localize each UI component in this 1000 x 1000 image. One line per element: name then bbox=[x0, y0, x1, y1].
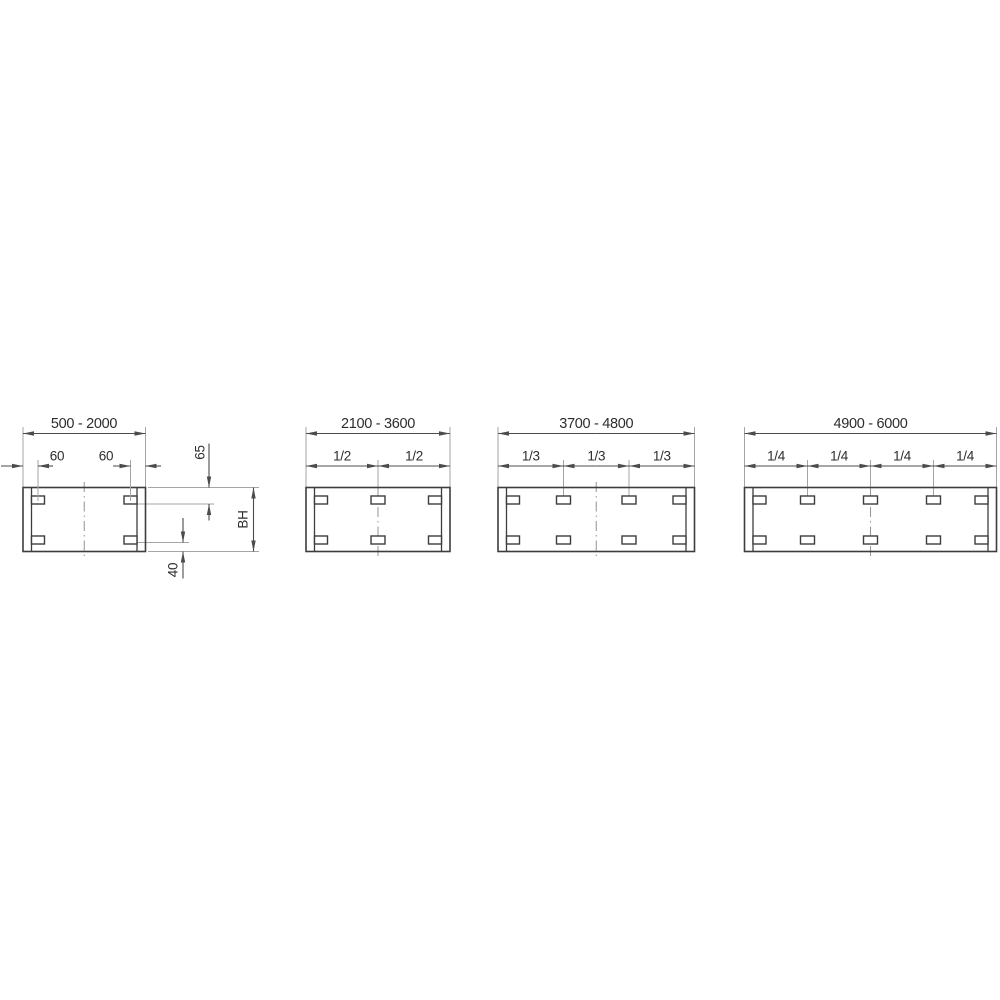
dim-label-60-left: 60 bbox=[50, 449, 64, 464]
dim-label-65: 65 bbox=[193, 445, 208, 459]
panel-2-range-dimension: 2100 - 3600 bbox=[306, 416, 450, 434]
panel-1-height-dimension: BH bbox=[236, 488, 254, 552]
panel-3-range-dimension: 3700 - 4800 bbox=[498, 416, 695, 434]
dim-label-40: 40 bbox=[166, 563, 181, 577]
dim-label-quarter-2: 1/4 bbox=[830, 449, 849, 464]
dim-label-range-4: 4900 - 6000 bbox=[833, 416, 907, 432]
technical-drawing-canvas: 500 - 2000 60 60 65 BH 40 bbox=[0, 0, 1000, 1000]
slot-position-diagrams: 500 - 2000 60 60 65 BH 40 bbox=[0, 0, 1000, 1000]
dim-label-range-2: 2100 - 3600 bbox=[341, 416, 415, 432]
panel-2-extension-lines bbox=[306, 427, 450, 496]
panel-3-fraction-dimensions: 1/3 1/3 1/3 bbox=[498, 449, 695, 467]
panel-1-drawing: 500 - 2000 60 60 65 BH 40 bbox=[1, 416, 259, 579]
dim-label-third-2: 1/3 bbox=[587, 449, 605, 464]
dim-label-third-3: 1/3 bbox=[653, 449, 671, 464]
dim-label-60-right: 60 bbox=[99, 449, 113, 464]
panel-2-drawing: 2100 - 3600 1/2 1/2 bbox=[306, 416, 450, 560]
panel-1-extension-lines bbox=[23, 427, 259, 552]
panel-1-top-offset-dimension: 65 bbox=[193, 444, 210, 521]
panel-4-drawing: 4900 - 6000 1/4 1/4 1/4 1/4 bbox=[745, 416, 997, 560]
panel-4-range-dimension: 4900 - 6000 bbox=[745, 416, 997, 434]
panel-1-range-dimension: 500 - 2000 bbox=[23, 416, 146, 434]
panel-1-bottom-offset-dimension: 40 bbox=[166, 518, 184, 579]
dim-label-quarter-1: 1/4 bbox=[767, 449, 786, 464]
dim-label-half-1: 1/2 bbox=[333, 449, 351, 464]
panel-2-slots bbox=[315, 496, 442, 544]
dim-label-quarter-3: 1/4 bbox=[893, 449, 912, 464]
panel-4-slots bbox=[753, 496, 988, 544]
dim-label-quarter-4: 1/4 bbox=[956, 449, 975, 464]
dim-label-third-1: 1/3 bbox=[522, 449, 540, 464]
dim-label-range-3: 3700 - 4800 bbox=[559, 416, 633, 432]
dim-label-half-2: 1/2 bbox=[405, 449, 423, 464]
dim-label-range-1: 500 - 2000 bbox=[51, 416, 118, 432]
panel-3-drawing: 3700 - 4800 1/3 1/3 1/3 bbox=[498, 416, 695, 559]
dim-label-bh: BH bbox=[236, 510, 251, 528]
panel-1-slot-offset-dimensions: 60 60 bbox=[1, 449, 161, 467]
